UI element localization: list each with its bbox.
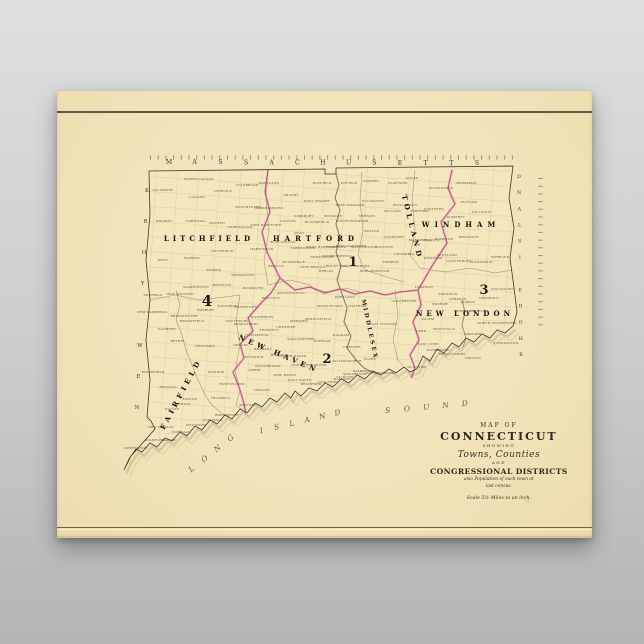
town-label: GREENWICH [124,446,147,450]
town-label: MIDDLEBURY [234,322,260,326]
town-label: SOUTH WINDSOR [336,219,369,223]
rhode-island-label: E [519,287,522,293]
town-label: NORWALK [172,430,191,434]
rhode-island-label: D [517,174,521,180]
town-label: SEYMOUR [245,355,264,359]
town-label: NORTH BRANFORD [291,363,326,367]
rhode-island-label: D [519,303,523,309]
town-label: NAUGATUCK [245,333,269,337]
town-label: LYME [416,329,427,333]
town-label: CANAAN [189,195,205,199]
town-label: DURHAM [314,339,331,343]
town-label: TOLLAND [383,209,401,213]
town-label: ROCKY HILL [326,264,349,268]
town-label: NEW MILFORD [166,292,194,296]
cartouche-showing: SHOWING [389,444,609,449]
town-label: BETHEL [171,339,186,343]
town-label: EAST LYME [418,342,439,346]
photo-background: MASSACHUSETTSNEWYORKRHODEISLAND LONGISLA… [0,0,644,644]
town-label: LITCHFIELD [211,249,234,253]
town-label: NEW CANAAN [148,425,174,429]
town-label: CORNWALL [186,219,207,223]
town-label: AVON [293,231,304,235]
rhode-island-label: L [518,223,521,229]
town-label: TRUMBULL [211,396,232,400]
town-label: HARWINTON [250,247,274,251]
town-label: EASTON [182,397,197,401]
town-label: CHESHIRE [276,325,296,329]
massachusetts-label: A [268,159,274,166]
massachusetts-label: A [191,159,197,166]
town-label: BERLIN [319,269,333,273]
town-label: WESTON [175,402,191,406]
rhode-island-label: O [519,320,523,326]
rhode-island-label: S [518,239,521,245]
town-label: COVENTRY [384,235,405,239]
town-label: SCOTLAND [437,253,457,257]
town-label: CHESTER [343,345,361,349]
town-label: KILLINGLY [472,210,492,214]
rhode-island-label: N [517,190,521,196]
massachusetts-label: C [295,159,300,166]
county-label-windham: WINDHAM [421,220,500,229]
massachusetts-label: S [218,159,222,166]
town-label: NEWINGTON [310,255,334,259]
massachusetts-label: M [166,159,173,166]
town-label: COLEBROOK [235,183,258,187]
town-label: BETHANY [254,347,272,351]
sound-letter: O [199,453,209,464]
town-label: DANBURY [158,327,177,331]
town-label: MIDDLEFIELD [305,317,331,321]
rhode-island-label: I [519,255,521,261]
town-label: WINDSOR [324,214,342,218]
town-label: NORFOLK [214,189,233,193]
town-label: HEBRON [383,260,399,264]
town-label: WASHINGTON [183,285,209,289]
cartouche-state-name: CONNECTICUT [389,431,609,444]
town-label: ELLINGTON [362,199,384,203]
town-label: SUFFIELD [313,181,332,185]
town-label: ESSEX [364,357,377,361]
town-label: CANTON [280,219,296,223]
new-york-label: W [137,343,143,349]
map-poster: MASSACHUSETTSNEWYORKRHODEISLAND LONGISLA… [57,91,592,538]
cartouche-towns-counties: Towns, Counties [389,450,609,460]
town-label: BURLINGTON [271,240,296,244]
town-label: ANDOVER [374,245,394,249]
town-label: NORTH HAVEN [279,354,307,358]
sound-letter: U [423,402,431,412]
town-label: BETHLEM [213,283,232,287]
town-label: NORTH CANAAN [184,177,214,181]
rhode-island-label: R [519,352,523,358]
massachusetts-label: H [320,160,326,167]
town-label: CLINTON [336,375,353,379]
sound-letter: N [317,411,327,422]
town-label: BRIDGEPORT [215,413,240,417]
town-label: HADDAM [333,333,350,337]
town-label: EASTFORD [424,207,444,211]
massachusetts-label: E [398,160,403,167]
town-label: EAST WINDSOR [336,203,365,207]
town-label: WATERTOWN [234,305,258,309]
rhode-island-label: A [517,206,522,212]
town-label: MILFORD [239,403,257,407]
sound-letter: I [258,426,265,436]
town-label: PRESTON [469,309,487,313]
cartouche-note-1: also Population of each town at [389,477,609,482]
town-label: BRIDGEWATER [171,314,198,318]
town-label: OLD SAYBROOK [366,371,395,375]
sound-letter: G [225,433,235,444]
town-label: ORANGE [254,388,270,392]
town-label: PLAINFIELD [470,260,493,264]
town-label: WOLCOTT [262,296,281,300]
town-label: MORRIS [207,268,222,272]
town-label: STAFFORD [388,181,408,185]
sound-letter: O [404,404,411,414]
town-label: NEW HAVEN [274,373,297,377]
town-label: STAMFORD [145,438,166,442]
town-label: KILLINGWORTH [332,359,361,363]
cartouche-congressional: CONGRESSIONAL DISTRICTS [389,468,609,477]
town-label: SALEM [422,317,435,321]
town-label: WARREN [184,256,200,260]
sound-letter: L [186,464,196,475]
town-label: BROOKLYN [459,235,479,239]
town-label: TORRINGTON [228,225,253,229]
town-label: GROTON [465,356,481,360]
town-label: WESTPORT [186,423,207,427]
sound-letter: L [287,418,295,428]
town-label: FAIRFIELD [203,418,223,422]
sound-letter: N [441,400,450,410]
town-label: LEDYARD [464,332,481,336]
town-label: MARLBOROUGH [360,269,390,273]
town-label: OLD LYME [408,365,428,369]
massachusetts-label: S [244,159,248,166]
town-label: WOODBRIDGE [255,364,281,368]
town-label: LISBON [461,300,475,304]
town-label: NEW LONDON [439,352,465,356]
town-label: WOODSTOCK [429,186,453,190]
massachusetts-label: T [424,160,429,167]
town-label: SHERMAN [144,293,163,297]
town-label: MONROE [208,370,225,374]
town-label: BRISTOL [268,264,284,268]
town-label: EAST HADDAM [369,322,397,326]
town-label: UNION [406,176,419,180]
town-label: NEWTOWN [195,344,215,348]
town-label: LEBANON [415,285,433,289]
town-label: MANCHESTER [351,245,378,249]
town-label: MIDDLETOWN [317,304,343,308]
town-label: THOMASTON [231,273,255,277]
town-label: PORTLAND [335,295,355,299]
new-york-label: N [135,405,140,411]
town-label: GOSHEN [209,221,225,225]
town-label: COLCHESTER [391,299,417,303]
massachusetts-label: S [372,160,376,167]
town-label: WATERFORD [426,348,449,352]
town-label: VERNON [358,214,375,218]
town-label: STONINGTON [493,341,518,345]
town-label: ENFIELD [341,181,358,185]
town-label: WILLINGTON [393,203,417,207]
town-label: BLOOMFIELD [305,220,330,224]
new-york-label: Y [140,281,145,287]
county-label-litchfield: LITCHFIELD [164,234,254,243]
town-label: NORTH STONINGTON [477,321,517,325]
sound-letter: D [460,399,468,409]
town-label: ROXBURY [197,308,215,312]
town-label: REDDING [159,385,177,389]
town-label: PUTNAM [461,200,478,204]
sound-letter: S [273,422,280,432]
town-label: SALISBURY [153,188,174,192]
sound-letter: S [385,406,391,415]
town-label: STERLING [491,255,510,259]
town-label: BARKHAMSTED [255,206,284,210]
town-label: VOLUNTOWN [490,287,515,291]
town-label: MONTVILLE [433,327,456,331]
town-label: CANTERBURY [446,259,472,263]
new-york-label: R [144,219,149,225]
new-york-label: O [142,250,147,256]
town-label: WILTON [165,407,180,411]
town-label: NEW FAIRFIELD [137,310,167,314]
town-label: BOZRAH [432,302,448,306]
town-label: SOMERS [363,179,379,183]
town-label: WATERBURY [251,315,274,319]
massachusetts-label: T [449,160,454,167]
sound-letter: D [332,407,341,417]
town-label: BROOKFIELD [180,319,204,323]
massachusetts-label: S [475,160,479,167]
town-label: RIDGEFIELD [142,370,165,374]
cartouche-map-of: MAP OF [389,423,609,430]
town-label: GRANBY [283,193,299,197]
town-label: SOUTHINGTON [277,291,305,295]
town-label: EAST GRANBY [304,199,331,203]
sound-letter: N [211,443,223,455]
town-label: WALLINGFORD [287,337,315,341]
town-label: SHARON [156,219,172,223]
town-label: PLYMOUTH [243,286,264,290]
title-cartouche: MAP OF CONNECTICUT SHOWING Towns, Counti… [389,423,609,501]
town-label: HUNTINGTON [219,382,245,386]
cartouche-note-2: last census. [389,484,609,489]
town-label: GRISWOLD [479,296,499,300]
new-york-label: E [136,374,140,380]
town-label: KENT [158,258,169,262]
town-label: OXFORD [233,343,249,347]
town-label: HARTLAND [259,181,280,185]
town-label: COLUMBIA [394,252,414,256]
sound-letter: A [302,415,311,425]
town-label: DERBY [249,368,262,372]
rhode-island-label: H [519,336,523,342]
town-label: THOMPSON [455,181,477,185]
town-label: FRANKLIN [438,292,457,296]
town-label: POMFRET [447,215,466,219]
town-label: NEW HARTFORD [251,223,282,227]
town-label: CHATHAM [348,304,367,308]
town-label: PLAINVILLE [283,260,306,264]
cartouche-and: AND [389,461,609,466]
town-label: BOLTON [364,229,379,233]
town-label: SIMSBURY [294,214,314,218]
town-label: HAMPTON [435,237,454,241]
town-label: MANSFIELD [409,238,432,242]
massachusetts-label: U [346,160,351,167]
cartouche-scale: Scale 5½ Miles to an inch. [389,496,609,502]
